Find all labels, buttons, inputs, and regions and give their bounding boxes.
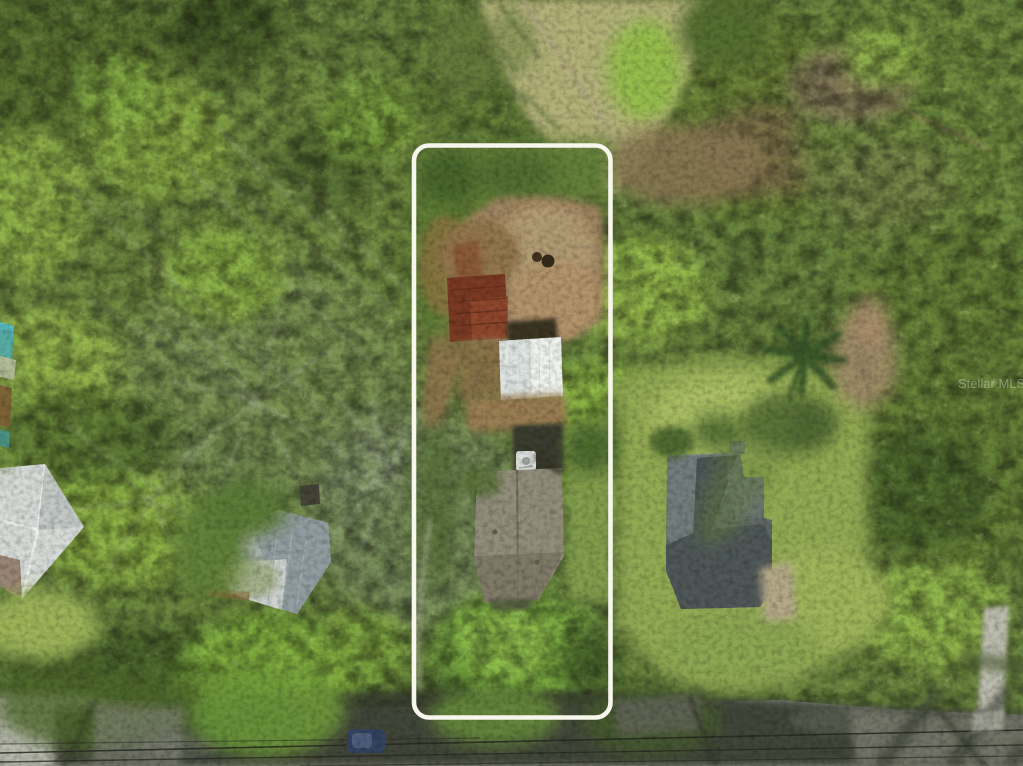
svg-text:Stellar MLS: Stellar MLS	[958, 376, 1023, 391]
